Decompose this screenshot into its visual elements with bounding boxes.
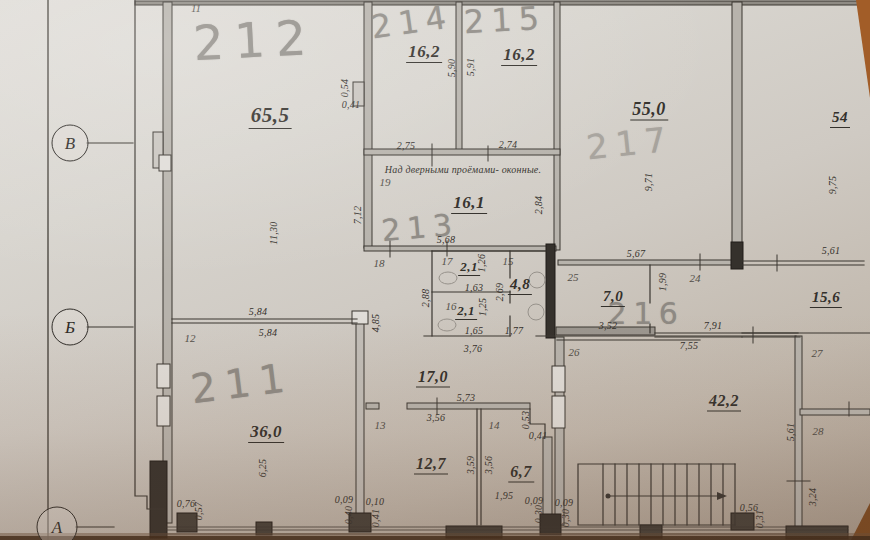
room-area-label: 55,0 [630,100,668,121]
dimension-label: 1,65 [465,326,484,336]
dimension-label: 2,69 [495,283,505,302]
room-area-label: 42,2 [707,393,741,412]
floorplan-labels: ВБА21221421521721321621165,516,216,255,0… [0,0,870,540]
dimension-label: 5,61 [786,423,796,442]
dimension-label: 4,85 [371,314,381,333]
dimension-label: 2,88 [421,289,431,308]
dimension-label: 1,26 [477,254,487,273]
grid-node-number: 25 [568,272,579,283]
dimension-label: 0,31 [755,510,765,529]
room-area-label: 12,7 [414,456,448,475]
dimension-label: 0,57 [194,502,204,521]
dimension-label: 0,30 [534,505,544,524]
grid-node-number: 16 [446,301,457,312]
grid-node-number: 15 [503,256,514,267]
grid-node-number: 13 [375,420,386,431]
dimension-label: 0,40 [344,506,354,525]
grid-node-number: 19 [380,177,391,188]
dimension-label: 5,84 [259,328,278,338]
dimension-label: 0,09 [335,495,354,505]
grid-node-number: 28 [813,426,824,437]
room-number-handwritten: 217 [585,122,675,165]
dimension-label: 5,91 [466,58,476,77]
dimension-label: 9,75 [828,176,838,195]
dimension-label: 5,68 [437,235,456,245]
dimension-label: 0,41 [371,509,381,528]
room-area-label: 6,7 [508,464,534,483]
grid-node-number: 18 [374,258,385,269]
room-number-handwritten: 212 [192,13,318,67]
dimension-label: 3,76 [464,344,483,354]
dimension-label: 2,74 [499,140,518,150]
room-number-handwritten: 215 [463,2,547,38]
grid-node-number: 11 [191,3,201,14]
dimension-label: 2,75 [397,141,416,151]
room-area-label: 7,0 [601,289,625,307]
room-area-label: 36,0 [248,423,284,443]
room-area-label: 16,2 [406,43,442,63]
dimension-label: 5,61 [822,246,841,256]
dimension-label: 5,84 [249,307,268,317]
room-area-label: 4,8 [508,277,532,295]
dimension-label: 1,95 [495,491,514,501]
dimension-label: 0,09 [555,498,574,508]
axis-marker: В [52,125,89,162]
grid-node-number: 26 [569,347,580,358]
grid-node-number: 17 [442,256,453,267]
dimension-label: 6,25 [258,459,268,478]
dimension-label: 1,99 [658,273,668,292]
room-number-handwritten: 214 [369,0,455,43]
dimension-label: 0,54 [340,79,350,98]
dimension-label: 5,90 [447,59,457,78]
dimension-label: 2,84 [534,196,544,215]
dimension-label: 7,55 [680,341,699,351]
grid-node-number: 24 [690,273,701,284]
room-area-label: 65,5 [249,105,292,129]
dimension-label: 0,41 [529,431,548,441]
dimension-label: 3,52 [599,321,618,331]
dimension-label: 5,67 [627,249,646,259]
room-area-label: 17,0 [416,369,450,388]
room-area-label: 16,1 [451,194,487,214]
dimension-label: 9,71 [644,173,654,192]
room-area-label: 54 [830,110,850,128]
axis-marker: Б [52,309,89,346]
dimension-label: 3,59 [466,456,476,475]
dimension-label: 7,91 [704,321,723,331]
dimension-label: 3,56 [484,456,494,475]
dimension-label: 11,30 [269,221,279,244]
grid-node-number: 27 [812,348,823,359]
dimension-label: 7,12 [353,206,363,225]
dimension-label: 1,77 [505,326,524,336]
dimension-label: 3,56 [427,413,446,423]
grid-node-number: 14 [489,420,500,431]
axis-marker: А [37,507,78,540]
dimension-label: 1,63 [465,283,484,293]
floorplan-photo: ВБА21221421521721321621165,516,216,255,0… [0,0,870,540]
dimension-label: 3,24 [808,488,818,507]
dimension-label: 0,30 [561,509,571,528]
room-area-label: 2,1 [455,304,477,320]
room-number-handwritten: 211 [189,357,296,409]
dimension-label: 0,10 [366,497,385,507]
dimension-label: 5,73 [457,393,476,403]
grid-node-number: 12 [185,333,196,344]
dimension-label: 0,53 [521,411,531,430]
plan-note: Над дверными проёмами- оконные. [385,165,541,175]
room-area-label: 15,6 [810,290,842,308]
room-area-label: 16,2 [501,46,537,66]
dimension-label: 1,25 [478,298,488,317]
dimension-label: 0,41 [342,100,361,110]
